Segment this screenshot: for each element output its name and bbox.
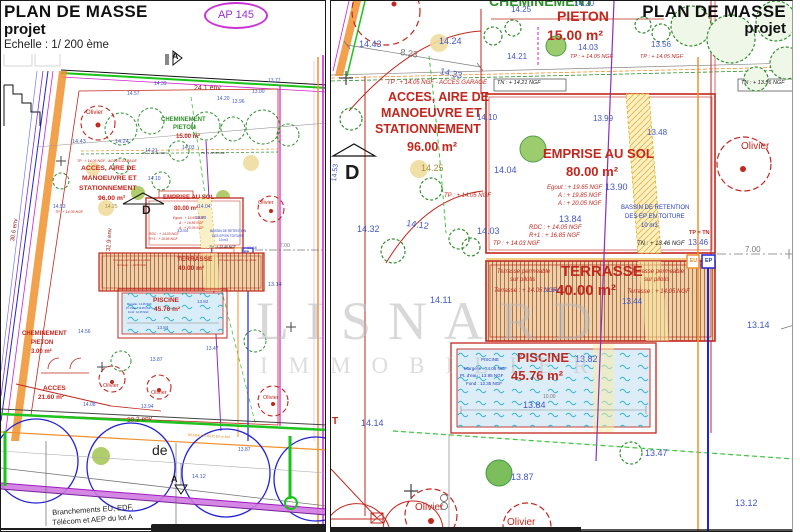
plan-de-masse-sheet: A24.1 env14.3914.5713.7713.0014.2013.96O… bbox=[0, 0, 800, 532]
sheet-subtitle: projet bbox=[642, 20, 786, 37]
sheet-subtitle: projet bbox=[4, 21, 166, 38]
detail-plan-panel: CHEMINEMENTPIETON15.00 m²14.2514.2014.43… bbox=[330, 0, 793, 532]
title-block: PLAN DE MASSE projet Echelle : 1/ 200 èm… bbox=[1, 1, 170, 54]
title-block-right: PLAN DE MASSE projet bbox=[642, 2, 786, 37]
overview-plan-drawing bbox=[1, 1, 326, 532]
sheet-scale: Echelle : 1/ 200 ème bbox=[4, 39, 166, 51]
sheet-title: PLAN DE MASSE bbox=[642, 2, 786, 22]
parcel-ref-badge: AP 145 bbox=[204, 2, 268, 29]
overview-plan-panel: A24.1 env14.3914.5713.7713.0014.2013.96O… bbox=[0, 0, 326, 532]
sheet-title: PLAN DE MASSE bbox=[4, 2, 166, 22]
detail-plan-drawing bbox=[331, 1, 793, 532]
